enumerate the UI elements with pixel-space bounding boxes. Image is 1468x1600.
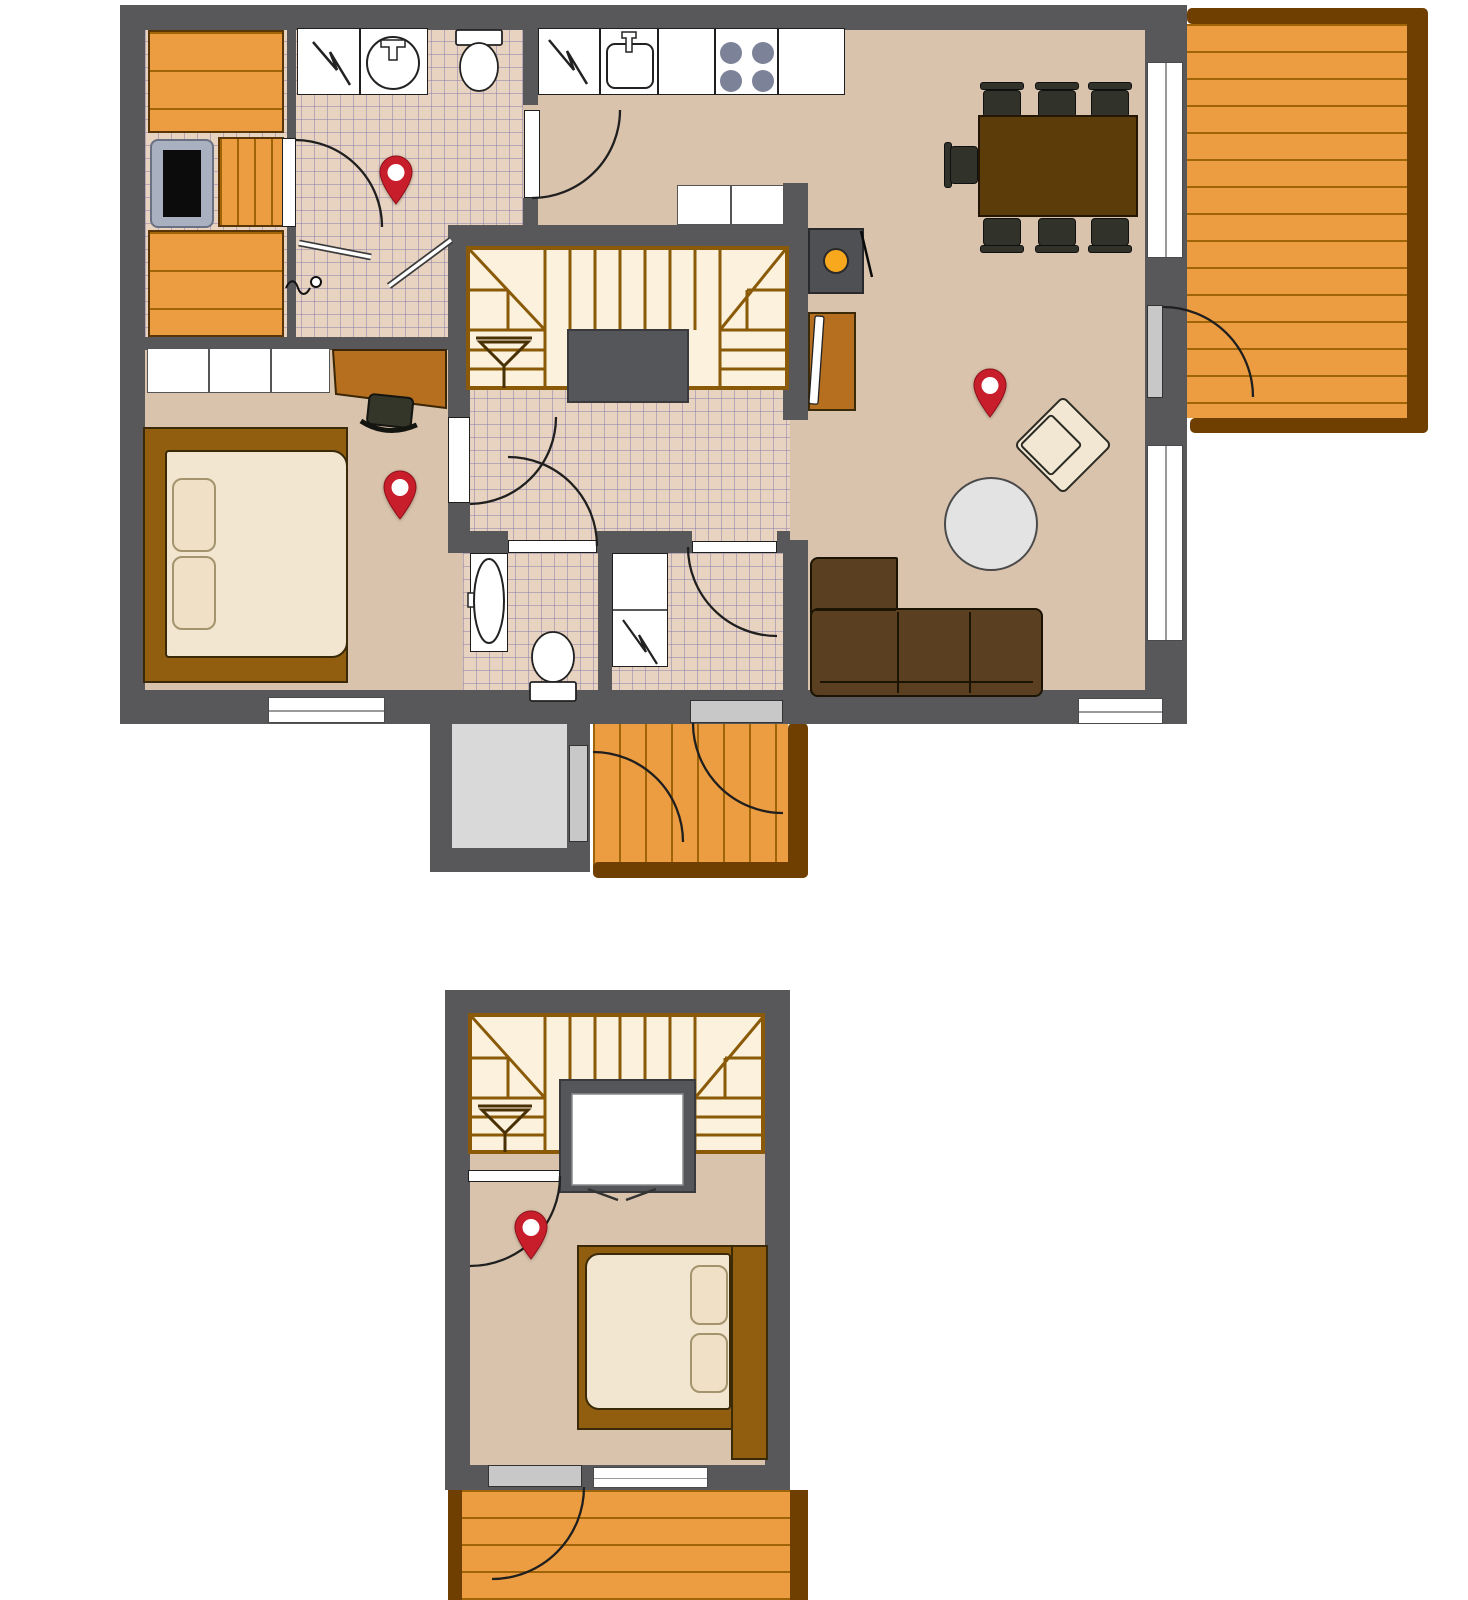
window-bedroom-south [268, 697, 385, 723]
dining-chair-cap [1088, 82, 1132, 90]
tv-sideboard [808, 312, 856, 411]
wall-living-west-lower [783, 540, 808, 702]
door-kitchen-washroom [524, 110, 540, 198]
wall-wc-north-b [597, 531, 692, 553]
wc-sink-counter [470, 553, 508, 652]
balcony-edge-right [790, 1490, 808, 1600]
stove-unit [715, 28, 778, 95]
sofa-body [810, 608, 1043, 697]
dining-chair [1091, 218, 1129, 246]
door-sauna [282, 138, 296, 227]
location-pin-bedroom[interactable] [381, 470, 419, 522]
base-cabinet-1 [677, 185, 731, 225]
dining-chair [983, 90, 1021, 118]
door-storage [569, 745, 588, 842]
balcony [462, 1490, 790, 1600]
wall-wc-north-c [777, 531, 790, 553]
door-utility [692, 541, 777, 553]
storage-floor [452, 724, 567, 848]
dining-chair [950, 146, 978, 184]
floor-plan [0, 0, 1468, 1600]
location-pin-washroom[interactable] [377, 155, 415, 207]
sauna-bench-step [218, 137, 284, 227]
wardrobe-door-1 [147, 348, 209, 393]
wall-sauna-a [287, 28, 296, 138]
wall-storage-left [430, 700, 452, 872]
wardrobe-door-2 [209, 348, 271, 393]
wall-wc-div [598, 553, 612, 702]
location-pin-living-room[interactable] [971, 368, 1009, 420]
window-living-east [1147, 445, 1183, 641]
wall-hall-west-a [448, 225, 470, 417]
location-pin-bedroom[interactable] [512, 1210, 550, 1262]
upper-wall-left [445, 990, 470, 1490]
dining-chair [1038, 218, 1076, 246]
deck-edge-top [1187, 8, 1421, 24]
dining-chair-cap [980, 82, 1024, 90]
entry-porch [593, 723, 788, 870]
window-living-south [1078, 698, 1163, 724]
window-upper-south [593, 1467, 708, 1488]
sauna-bench-bottom [148, 230, 284, 337]
hallway-floor [448, 385, 790, 553]
wall-stairs-north [470, 225, 808, 250]
wall-living-west-upper [783, 183, 808, 420]
bed-pillow-2 [172, 556, 216, 630]
porch-edge-bottom [593, 862, 808, 878]
base-cabinet-2 [731, 185, 784, 225]
shower-unit [297, 28, 360, 95]
door-wc [508, 540, 597, 553]
sauna-bench-top [148, 30, 284, 133]
dining-chair-cap [1088, 245, 1132, 253]
deck-edge-right [1407, 8, 1428, 433]
dining-chair [1091, 90, 1129, 118]
upper-bed-headboard [731, 1245, 768, 1460]
wardrobe-door-3 [271, 348, 330, 393]
kitchen-counter [658, 28, 715, 95]
door-bedroom [448, 417, 470, 503]
sauna-stove-core [163, 150, 201, 217]
door-entry [690, 700, 783, 723]
wall-kitchen-div-a [523, 28, 538, 105]
wall-wc-north-a [448, 531, 508, 553]
door-balcony [488, 1465, 582, 1487]
upper-wall-right [765, 990, 790, 1490]
deck-edge-bottom [1190, 418, 1428, 433]
stairs-down-arrow-upper [478, 1106, 532, 1152]
porch-edge-right [788, 723, 808, 878]
door-upper-bedroom [468, 1170, 560, 1182]
wall-storage-bottom [430, 848, 590, 872]
upper-bed-pillow-2 [690, 1333, 728, 1393]
sauna-stove [150, 139, 214, 228]
deck [1187, 24, 1407, 418]
coffee-table [944, 477, 1038, 571]
kitchen-counter-2 [778, 28, 845, 95]
water-heater [612, 553, 668, 667]
upper-wall-top [445, 990, 790, 1015]
bed-pillow-1 [172, 478, 216, 552]
wall-left [120, 5, 145, 712]
washbasin-unit [360, 28, 428, 95]
kitchen-sink-unit [600, 28, 658, 95]
wall-kitchen-div-b [523, 198, 538, 227]
dishwasher-unit [538, 28, 600, 95]
balcony-edge-left [448, 1490, 462, 1600]
dining-chair-cap [1035, 245, 1079, 253]
dining-chair-cap [1035, 82, 1079, 90]
wall-top [120, 5, 1187, 30]
window-dining-east [1147, 62, 1183, 258]
dining-chair [983, 218, 1021, 246]
fireplace-hatch [823, 248, 849, 274]
dining-chair-cap [980, 245, 1024, 253]
door-deck [1147, 305, 1163, 398]
dining-chair [1038, 90, 1076, 118]
upper-bed-pillow-1 [690, 1265, 728, 1325]
fireplace [808, 228, 864, 294]
wall-sauna-b [287, 227, 296, 337]
dining-table [978, 115, 1138, 217]
